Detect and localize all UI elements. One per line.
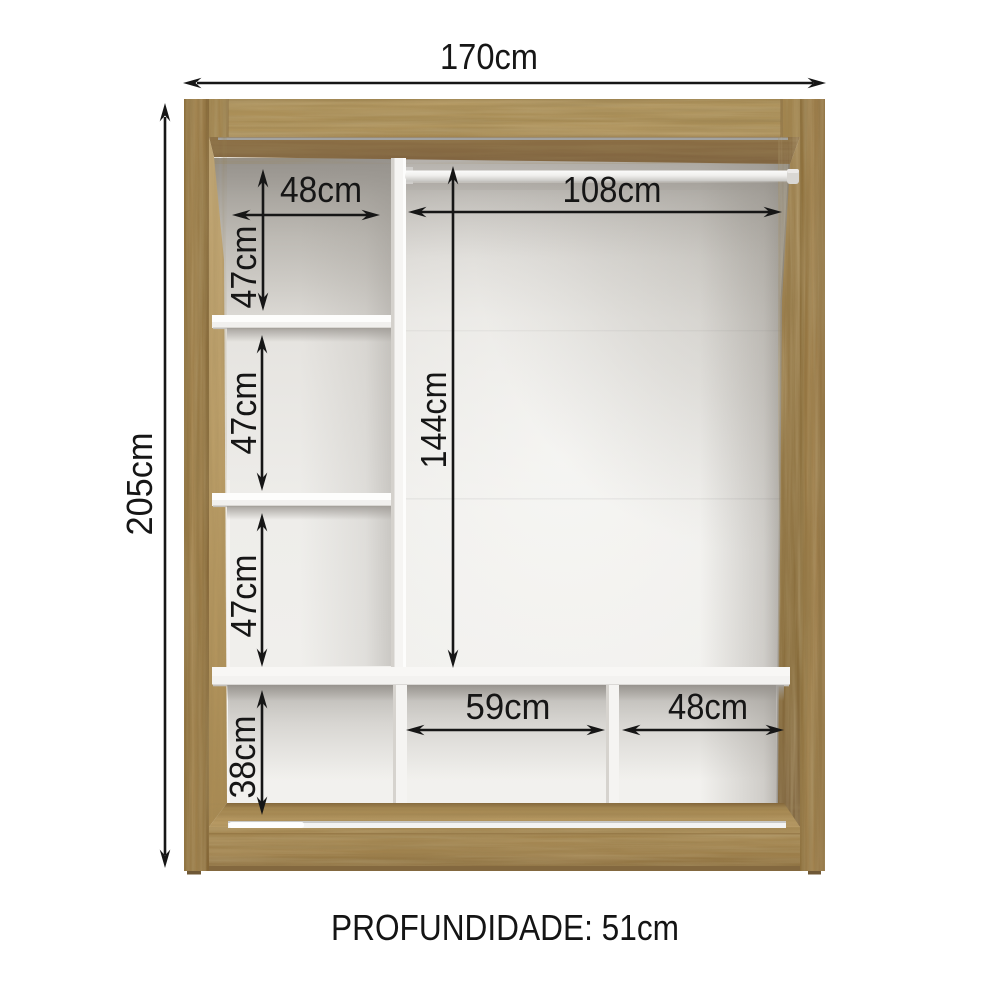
svg-text:48cm: 48cm: [280, 169, 362, 210]
svg-text:47cm: 47cm: [223, 555, 264, 638]
svg-text:38cm: 38cm: [222, 716, 263, 799]
svg-text:47cm: 47cm: [223, 226, 264, 309]
svg-text:205cm: 205cm: [119, 433, 160, 536]
svg-text:48cm: 48cm: [668, 686, 748, 727]
svg-text:59cm: 59cm: [466, 686, 551, 727]
svg-text:170cm: 170cm: [440, 36, 538, 77]
svg-text:47cm: 47cm: [223, 372, 264, 455]
svg-text:108cm: 108cm: [563, 169, 662, 210]
svg-text:144cm: 144cm: [413, 372, 454, 469]
svg-text:PROFUNDIDADE: 51cm: PROFUNDIDADE: 51cm: [331, 907, 679, 948]
